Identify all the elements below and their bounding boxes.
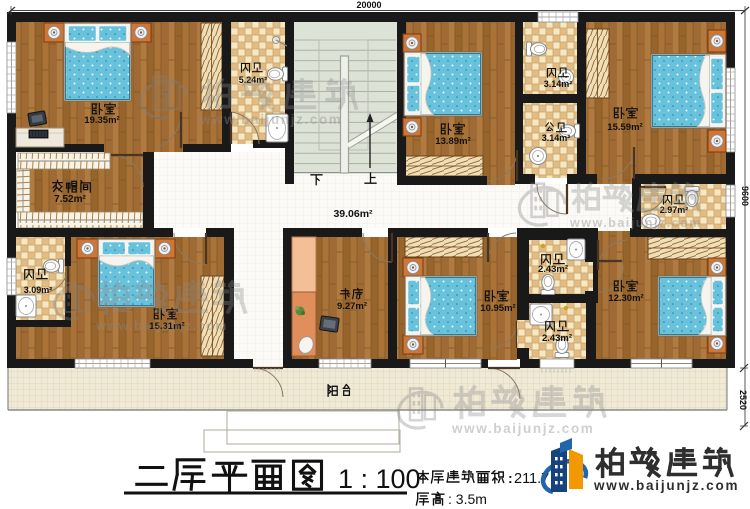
svg-text:19.35m²: 19.35m²: [84, 115, 119, 126]
svg-text:7.52m²: 7.52m²: [54, 194, 86, 205]
svg-text:www.baijunjz.com: www.baijunjz.com: [199, 112, 342, 127]
svg-text:www.baijunjz.com: www.baijunjz.com: [593, 478, 739, 493]
svg-text:9600: 9600: [740, 186, 750, 206]
svg-text:3.09m²: 3.09m²: [24, 285, 53, 295]
svg-text:3.14m²: 3.14m²: [542, 133, 571, 143]
svg-text:www.baijunjz.com: www.baijunjz.com: [95, 319, 228, 333]
svg-text:15.59m²: 15.59m²: [607, 122, 642, 133]
svg-text:2520: 2520: [738, 390, 748, 410]
svg-text:39.06m²: 39.06m²: [333, 208, 373, 220]
svg-text:9.27m²: 9.27m²: [337, 301, 367, 312]
svg-text:1 : 100: 1 : 100: [338, 464, 421, 494]
svg-text:2.43m²: 2.43m²: [538, 264, 568, 275]
svg-text:10.95m²: 10.95m²: [480, 303, 515, 314]
svg-text:2.43m²: 2.43m²: [542, 333, 572, 344]
svg-text:: 3.5m: : 3.5m: [448, 491, 487, 507]
svg-text:20000: 20000: [356, 0, 381, 10]
svg-text::: :: [508, 470, 513, 486]
svg-text:www.baijunjz.com: www.baijunjz.com: [451, 421, 594, 436]
svg-text:12.30m²: 12.30m²: [608, 293, 643, 304]
svg-text:13.89m²: 13.89m²: [435, 136, 470, 147]
svg-text:www.baijunjz.com: www.baijunjz.com: [569, 216, 702, 230]
svg-text:3.14m²: 3.14m²: [544, 79, 573, 89]
